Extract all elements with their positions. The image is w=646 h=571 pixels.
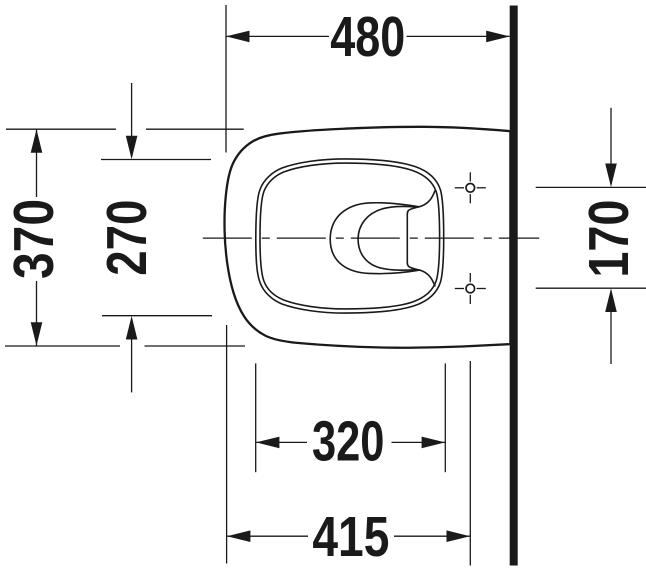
svg-text:320: 320 (312, 409, 385, 473)
svg-text:270: 270 (95, 200, 159, 276)
svg-text:170: 170 (577, 200, 641, 278)
svg-text:370: 370 (2, 199, 66, 279)
svg-text:480: 480 (330, 5, 405, 69)
svg-text:415: 415 (312, 505, 389, 569)
